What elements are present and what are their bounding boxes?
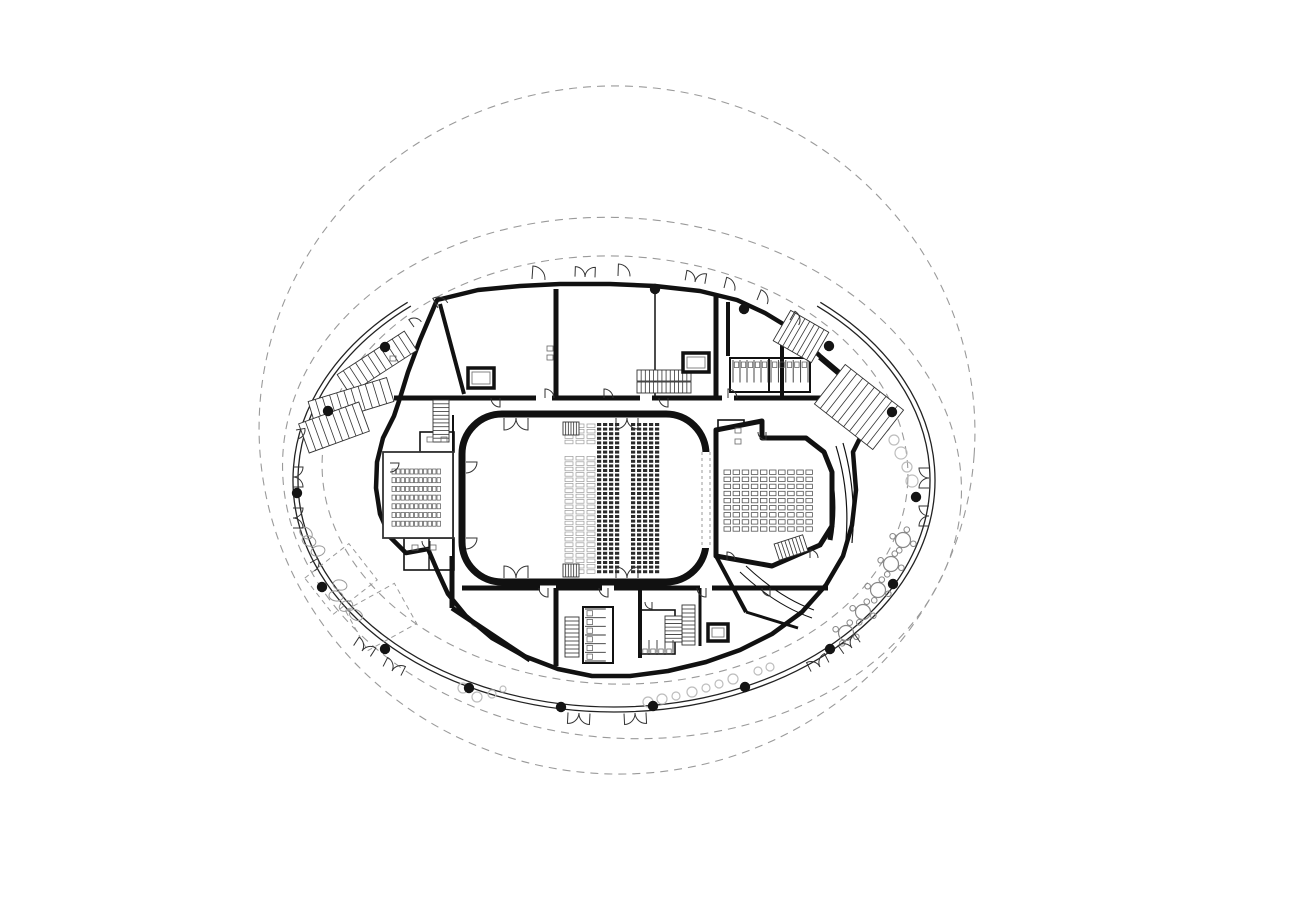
seat xyxy=(603,506,607,509)
seat xyxy=(643,524,647,527)
seat xyxy=(631,432,635,435)
seat xyxy=(631,538,635,541)
seat xyxy=(655,556,659,559)
seat xyxy=(643,538,647,541)
seat xyxy=(643,506,647,509)
seat xyxy=(649,497,653,500)
seat xyxy=(637,501,641,504)
seat xyxy=(643,520,647,523)
seat xyxy=(603,432,607,435)
seat xyxy=(643,423,647,426)
seat xyxy=(631,524,635,527)
seat xyxy=(597,570,601,573)
seat xyxy=(609,455,613,458)
seat xyxy=(631,441,635,444)
seat xyxy=(597,538,601,541)
seat xyxy=(637,529,641,532)
seat xyxy=(603,423,607,426)
seat xyxy=(603,492,607,495)
seat xyxy=(631,469,635,472)
seat xyxy=(637,451,641,454)
seat xyxy=(615,437,619,440)
seat xyxy=(609,566,613,569)
seat xyxy=(649,469,653,472)
seat xyxy=(631,520,635,523)
seat xyxy=(597,469,601,472)
seat xyxy=(637,487,641,490)
seat xyxy=(609,538,613,541)
stair xyxy=(563,422,579,435)
seat xyxy=(649,570,653,573)
seat xyxy=(655,543,659,546)
seat xyxy=(609,501,613,504)
seat xyxy=(649,451,653,454)
seat xyxy=(609,428,613,431)
seat xyxy=(637,547,641,550)
column-dot xyxy=(911,492,921,502)
seat xyxy=(597,543,601,546)
seat xyxy=(649,437,653,440)
seat xyxy=(597,464,601,467)
seat xyxy=(655,524,659,527)
seat xyxy=(603,469,607,472)
seat xyxy=(603,437,607,440)
seat xyxy=(637,533,641,536)
seat xyxy=(615,529,619,532)
seat xyxy=(637,437,641,440)
stair xyxy=(563,564,579,577)
seat xyxy=(603,441,607,444)
seat xyxy=(615,478,619,481)
seat xyxy=(649,556,653,559)
seat xyxy=(637,524,641,527)
seat xyxy=(603,552,607,555)
seat xyxy=(609,432,613,435)
seat xyxy=(637,469,641,472)
seat xyxy=(649,533,653,536)
seat xyxy=(609,451,613,454)
seat xyxy=(609,529,613,532)
seat xyxy=(643,428,647,431)
seat xyxy=(615,487,619,490)
seat xyxy=(643,446,647,449)
seat xyxy=(637,520,641,523)
seat xyxy=(609,515,613,518)
stair xyxy=(665,616,682,642)
stair xyxy=(682,605,695,645)
stair xyxy=(637,382,691,393)
column-dot xyxy=(317,582,327,592)
column-dot xyxy=(650,284,660,294)
seat xyxy=(615,492,619,495)
seat xyxy=(655,455,659,458)
seat xyxy=(597,492,601,495)
seat xyxy=(643,474,647,477)
seat xyxy=(597,533,601,536)
column-dot xyxy=(825,644,835,654)
seat xyxy=(597,566,601,569)
seat xyxy=(597,515,601,518)
seat xyxy=(649,520,653,523)
seat xyxy=(609,478,613,481)
seat xyxy=(655,474,659,477)
seat xyxy=(631,533,635,536)
seat xyxy=(649,492,653,495)
seat xyxy=(615,538,619,541)
seat xyxy=(649,529,653,532)
seat xyxy=(643,464,647,467)
seat xyxy=(603,451,607,454)
seat xyxy=(655,538,659,541)
seat xyxy=(655,529,659,532)
seat xyxy=(649,501,653,504)
seat xyxy=(643,529,647,532)
seat xyxy=(637,432,641,435)
seat xyxy=(643,533,647,536)
seat xyxy=(643,483,647,486)
seat xyxy=(631,492,635,495)
seat xyxy=(609,547,613,550)
seat xyxy=(603,483,607,486)
seat xyxy=(655,446,659,449)
seat xyxy=(597,520,601,523)
column-dot xyxy=(740,682,750,692)
seat xyxy=(655,561,659,564)
seat xyxy=(643,441,647,444)
column-dot xyxy=(556,702,566,712)
seat xyxy=(649,524,653,527)
seat xyxy=(655,441,659,444)
seat xyxy=(609,552,613,555)
seat xyxy=(597,474,601,477)
seat xyxy=(655,432,659,435)
seat xyxy=(609,556,613,559)
seat xyxy=(649,455,653,458)
seat xyxy=(603,556,607,559)
seat xyxy=(637,497,641,500)
seat xyxy=(603,570,607,573)
seat xyxy=(609,492,613,495)
seat xyxy=(631,510,635,513)
seat xyxy=(637,441,641,444)
seat xyxy=(643,561,647,564)
seat xyxy=(615,497,619,500)
seat xyxy=(597,497,601,500)
seat xyxy=(631,423,635,426)
seat xyxy=(655,437,659,440)
seat xyxy=(649,538,653,541)
seat xyxy=(603,566,607,569)
seat xyxy=(649,487,653,490)
seat xyxy=(603,543,607,546)
column-dot xyxy=(323,406,333,416)
seat xyxy=(631,529,635,532)
seat xyxy=(603,529,607,532)
seat xyxy=(637,492,641,495)
seat xyxy=(603,428,607,431)
seat xyxy=(597,455,601,458)
seat xyxy=(597,561,601,564)
seat xyxy=(655,510,659,513)
seat xyxy=(597,529,601,532)
seat xyxy=(615,520,619,523)
seat xyxy=(649,561,653,564)
seat xyxy=(643,547,647,550)
seat xyxy=(655,552,659,555)
seat xyxy=(649,543,653,546)
seat xyxy=(637,460,641,463)
column-dot xyxy=(824,341,834,351)
seat xyxy=(649,547,653,550)
seat xyxy=(609,506,613,509)
seat xyxy=(649,460,653,463)
seat xyxy=(649,423,653,426)
seat xyxy=(609,524,613,527)
seat xyxy=(655,506,659,509)
column-dot xyxy=(888,579,898,589)
seat xyxy=(631,547,635,550)
seat xyxy=(631,556,635,559)
column-dot xyxy=(887,407,897,417)
floor-plan-page xyxy=(0,0,1300,919)
column-dot xyxy=(464,683,474,693)
seat xyxy=(615,561,619,564)
seat xyxy=(609,464,613,467)
seat xyxy=(631,446,635,449)
seat xyxy=(655,460,659,463)
seat xyxy=(649,510,653,513)
seat xyxy=(609,483,613,486)
seat xyxy=(603,510,607,513)
seat xyxy=(603,487,607,490)
seat xyxy=(631,460,635,463)
seat xyxy=(643,437,647,440)
seat xyxy=(655,469,659,472)
seat xyxy=(631,543,635,546)
seat xyxy=(631,483,635,486)
seat xyxy=(631,478,635,481)
column-dot xyxy=(739,304,749,314)
seat xyxy=(643,515,647,518)
seat xyxy=(643,492,647,495)
seat xyxy=(597,510,601,513)
seat xyxy=(609,487,613,490)
seat xyxy=(643,510,647,513)
column-dot xyxy=(380,342,390,352)
seat xyxy=(609,533,613,536)
seat xyxy=(609,437,613,440)
seat xyxy=(615,501,619,504)
seat xyxy=(615,432,619,435)
seat xyxy=(655,501,659,504)
seat xyxy=(615,483,619,486)
seat xyxy=(609,423,613,426)
seat xyxy=(649,474,653,477)
seat xyxy=(637,552,641,555)
seat xyxy=(649,506,653,509)
seat xyxy=(631,474,635,477)
seat xyxy=(643,552,647,555)
seat xyxy=(603,520,607,523)
seat xyxy=(603,501,607,504)
seat xyxy=(609,441,613,444)
seat xyxy=(655,428,659,431)
seat xyxy=(637,478,641,481)
seat xyxy=(649,446,653,449)
seat xyxy=(597,501,601,504)
seat xyxy=(643,432,647,435)
seat xyxy=(655,497,659,500)
seat xyxy=(603,478,607,481)
seat xyxy=(637,561,641,564)
seat xyxy=(643,469,647,472)
seat xyxy=(655,483,659,486)
seat xyxy=(597,460,601,463)
seat xyxy=(637,446,641,449)
seat xyxy=(637,510,641,513)
seat xyxy=(631,561,635,564)
stair-outline xyxy=(433,400,449,442)
seat xyxy=(643,570,647,573)
seat xyxy=(603,561,607,564)
seat xyxy=(643,497,647,500)
seat xyxy=(655,423,659,426)
seat xyxy=(603,460,607,463)
seat xyxy=(649,552,653,555)
seat xyxy=(655,478,659,481)
floor-plan-drawing xyxy=(0,0,1300,919)
seat xyxy=(597,487,601,490)
seat xyxy=(597,428,601,431)
seat xyxy=(655,464,659,467)
seat xyxy=(655,570,659,573)
seat xyxy=(631,455,635,458)
seat xyxy=(603,533,607,536)
seat xyxy=(615,515,619,518)
seat xyxy=(615,451,619,454)
seat xyxy=(615,556,619,559)
seat xyxy=(609,446,613,449)
seat xyxy=(603,446,607,449)
column-dot xyxy=(648,701,658,711)
seat xyxy=(643,487,647,490)
seat xyxy=(649,432,653,435)
seat xyxy=(615,547,619,550)
seat xyxy=(631,570,635,573)
seat xyxy=(615,506,619,509)
seat xyxy=(597,437,601,440)
seat xyxy=(637,556,641,559)
seat xyxy=(643,451,647,454)
seat xyxy=(615,469,619,472)
seat xyxy=(649,428,653,431)
seat xyxy=(615,455,619,458)
seat xyxy=(597,446,601,449)
seat xyxy=(615,464,619,467)
seat xyxy=(655,533,659,536)
column-dot xyxy=(380,644,390,654)
seat xyxy=(597,432,601,435)
seat xyxy=(631,437,635,440)
seat xyxy=(603,547,607,550)
seat xyxy=(655,451,659,454)
seat xyxy=(603,538,607,541)
seat xyxy=(631,552,635,555)
seat xyxy=(649,478,653,481)
seat xyxy=(637,543,641,546)
shaft-wall xyxy=(708,624,728,641)
seat xyxy=(615,524,619,527)
seat xyxy=(597,451,601,454)
seat xyxy=(649,566,653,569)
seat xyxy=(597,441,601,444)
seat xyxy=(615,446,619,449)
seat xyxy=(631,497,635,500)
seat xyxy=(609,570,613,573)
seat xyxy=(655,515,659,518)
seat xyxy=(615,474,619,477)
seat xyxy=(643,543,647,546)
seat xyxy=(603,497,607,500)
seat xyxy=(603,464,607,467)
seat xyxy=(615,543,619,546)
seat xyxy=(637,483,641,486)
seat xyxy=(597,547,601,550)
seat xyxy=(655,566,659,569)
seat xyxy=(631,451,635,454)
seat xyxy=(637,538,641,541)
seat xyxy=(597,556,601,559)
seat xyxy=(649,515,653,518)
seat xyxy=(655,492,659,495)
seat xyxy=(649,483,653,486)
seat xyxy=(609,543,613,546)
seat xyxy=(655,487,659,490)
seat xyxy=(603,474,607,477)
seat xyxy=(603,515,607,518)
column-dot xyxy=(292,488,302,498)
seat xyxy=(615,510,619,513)
seat xyxy=(609,497,613,500)
seat xyxy=(643,460,647,463)
stair xyxy=(433,400,449,442)
seat xyxy=(643,501,647,504)
seat xyxy=(637,506,641,509)
seat xyxy=(631,506,635,509)
seat xyxy=(609,474,613,477)
seat xyxy=(597,483,601,486)
seat xyxy=(631,515,635,518)
seat xyxy=(643,455,647,458)
stair xyxy=(565,617,579,657)
seat xyxy=(597,506,601,509)
seat xyxy=(609,469,613,472)
seat xyxy=(637,455,641,458)
seat xyxy=(609,460,613,463)
seat xyxy=(643,566,647,569)
seat xyxy=(609,510,613,513)
seat xyxy=(649,441,653,444)
seat xyxy=(615,441,619,444)
seat xyxy=(597,524,601,527)
seat xyxy=(615,552,619,555)
seat xyxy=(637,464,641,467)
seat xyxy=(643,478,647,481)
seat xyxy=(597,552,601,555)
seat xyxy=(643,556,647,559)
seat xyxy=(655,547,659,550)
seat xyxy=(637,474,641,477)
